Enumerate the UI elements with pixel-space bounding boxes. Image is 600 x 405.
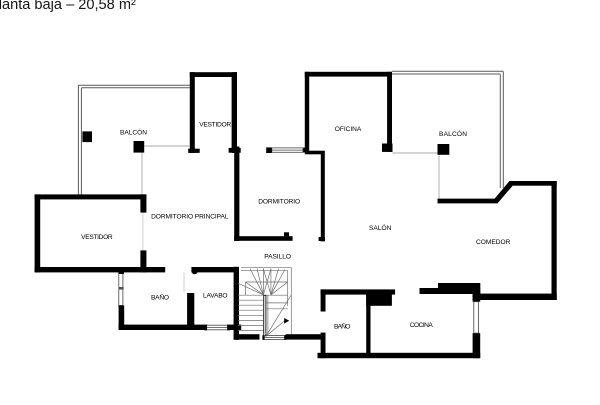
svg-text:BALCÓN: BALCÓN (439, 129, 467, 138)
svg-text:COMEDOR: COMEDOR (476, 239, 511, 246)
svg-text:DORMITORIO: DORMITORIO (258, 199, 300, 206)
svg-text:COCINA: COCINA (410, 322, 434, 329)
svg-text:SALÓN: SALÓN (369, 223, 392, 232)
svg-text:BAÑO: BAÑO (151, 293, 169, 302)
svg-text:VESTIDOR: VESTIDOR (199, 122, 231, 129)
svg-text:VESTIDOR: VESTIDOR (81, 234, 113, 241)
svg-text:DORMITORIO PRINCIPAL: DORMITORIO PRINCIPAL (151, 213, 229, 220)
svg-text:LAVABO: LAVABO (203, 293, 228, 300)
svg-text:BAÑO: BAÑO (334, 322, 351, 331)
svg-text:OFICINA: OFICINA (335, 126, 362, 133)
svg-text:Planta baja – 20,58 m²: Planta baja – 20,58 m² (0, 0, 136, 13)
svg-text:PASILLO: PASILLO (264, 253, 291, 260)
svg-text:BALCÓN: BALCÓN (120, 128, 147, 137)
